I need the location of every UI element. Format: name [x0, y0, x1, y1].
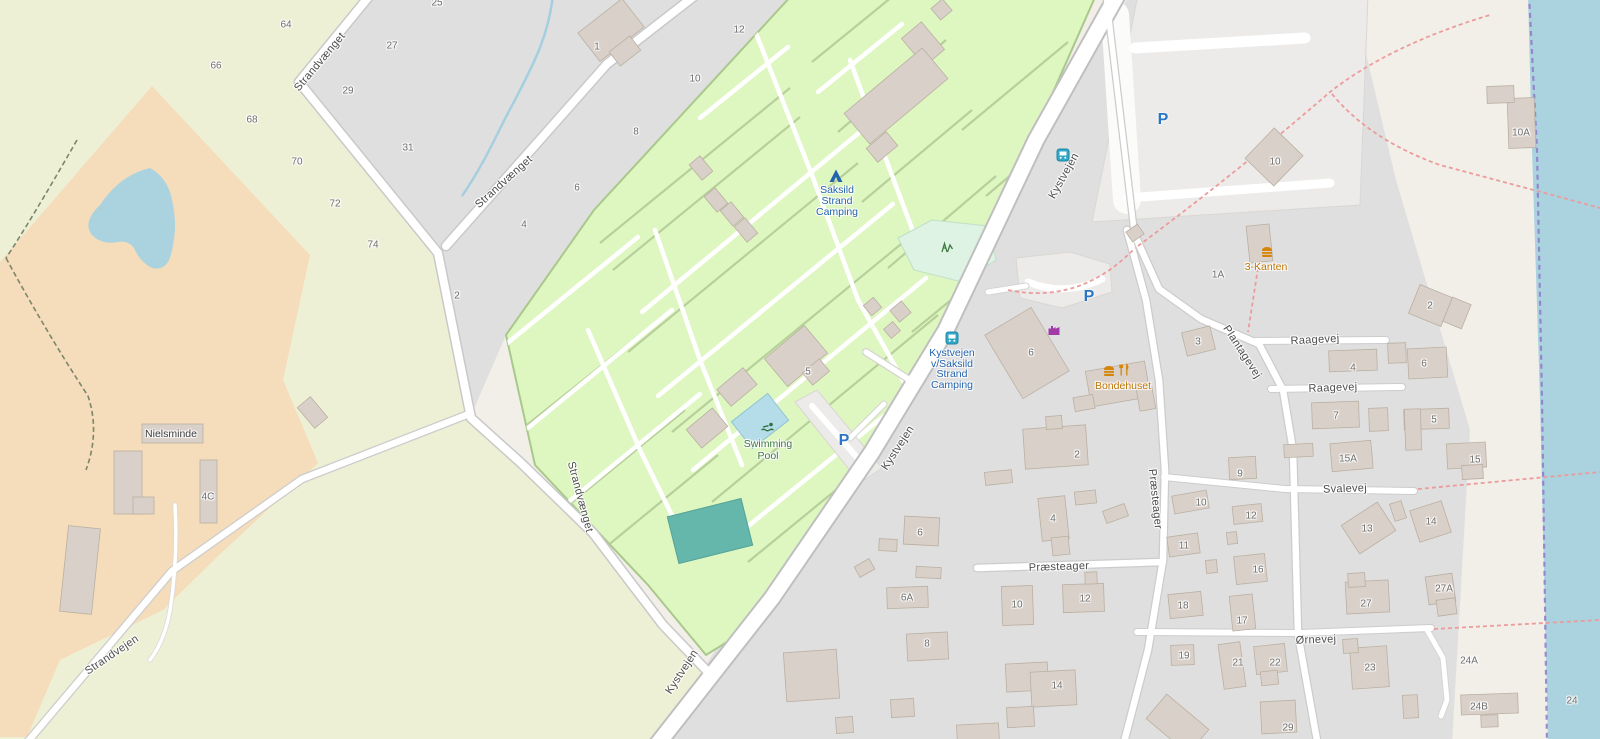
- building: [1507, 98, 1536, 149]
- building: [1006, 706, 1034, 727]
- map-canvas[interactable]: StrandvængetStrandvængetStrandvængetKyst…: [0, 0, 1600, 739]
- building: [984, 470, 1012, 486]
- building: [1136, 387, 1156, 411]
- building: [142, 424, 203, 443]
- building: [1046, 415, 1063, 429]
- building: [1388, 343, 1407, 364]
- building: [1051, 536, 1070, 556]
- building: [1232, 504, 1263, 525]
- map-tiles: [0, 0, 1600, 739]
- building: [133, 497, 154, 514]
- building: [1330, 440, 1373, 471]
- building: [1461, 693, 1519, 715]
- building: [1343, 638, 1359, 653]
- building: [891, 698, 915, 717]
- building: [1030, 670, 1077, 707]
- building: [835, 716, 853, 733]
- building: [1260, 700, 1297, 734]
- building: [1487, 86, 1515, 104]
- building: [1284, 443, 1314, 457]
- building: [1171, 645, 1195, 666]
- building: [1369, 408, 1389, 432]
- building: [1462, 464, 1484, 479]
- building: [1001, 585, 1033, 625]
- building: [879, 539, 898, 552]
- building: [916, 566, 942, 578]
- building: [1167, 533, 1200, 557]
- building: [1436, 598, 1457, 616]
- building: [906, 632, 948, 661]
- building: [1407, 347, 1448, 379]
- building: [1226, 532, 1237, 545]
- building: [957, 723, 1000, 739]
- building: [783, 649, 839, 702]
- building: [1402, 695, 1418, 719]
- building: [1074, 490, 1096, 505]
- building: [1348, 573, 1366, 588]
- building: [1254, 643, 1288, 674]
- building: [1481, 715, 1498, 728]
- building: [1234, 553, 1268, 584]
- building: [1228, 456, 1256, 479]
- building: [1205, 560, 1217, 574]
- building: [1168, 591, 1203, 618]
- building: [1085, 572, 1097, 584]
- building: [1404, 409, 1421, 451]
- building: [1329, 349, 1378, 372]
- building: [1260, 670, 1278, 686]
- building: [1063, 583, 1105, 612]
- building: [1246, 224, 1273, 263]
- building: [1023, 425, 1089, 469]
- building: [1073, 394, 1095, 411]
- building: [1038, 496, 1069, 542]
- building: [1312, 401, 1360, 429]
- building: [887, 586, 929, 608]
- building: [1229, 594, 1256, 631]
- building: [903, 516, 939, 546]
- building: [200, 460, 217, 523]
